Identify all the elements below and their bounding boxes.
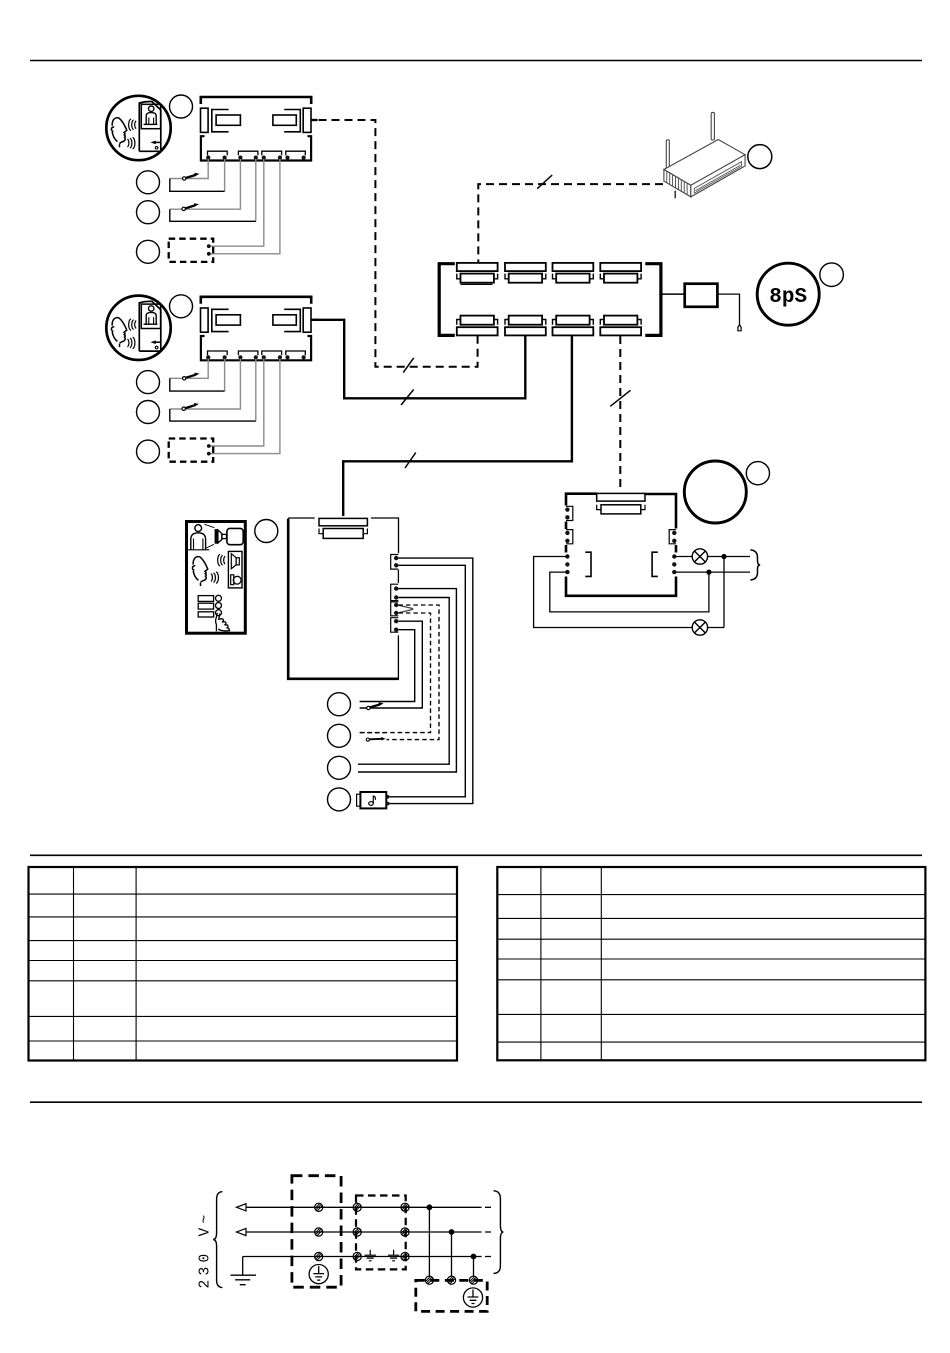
svg-text:8pS: 8pS <box>769 286 807 309</box>
svg-text:230 V~: 230 V~ <box>197 1210 213 1288</box>
